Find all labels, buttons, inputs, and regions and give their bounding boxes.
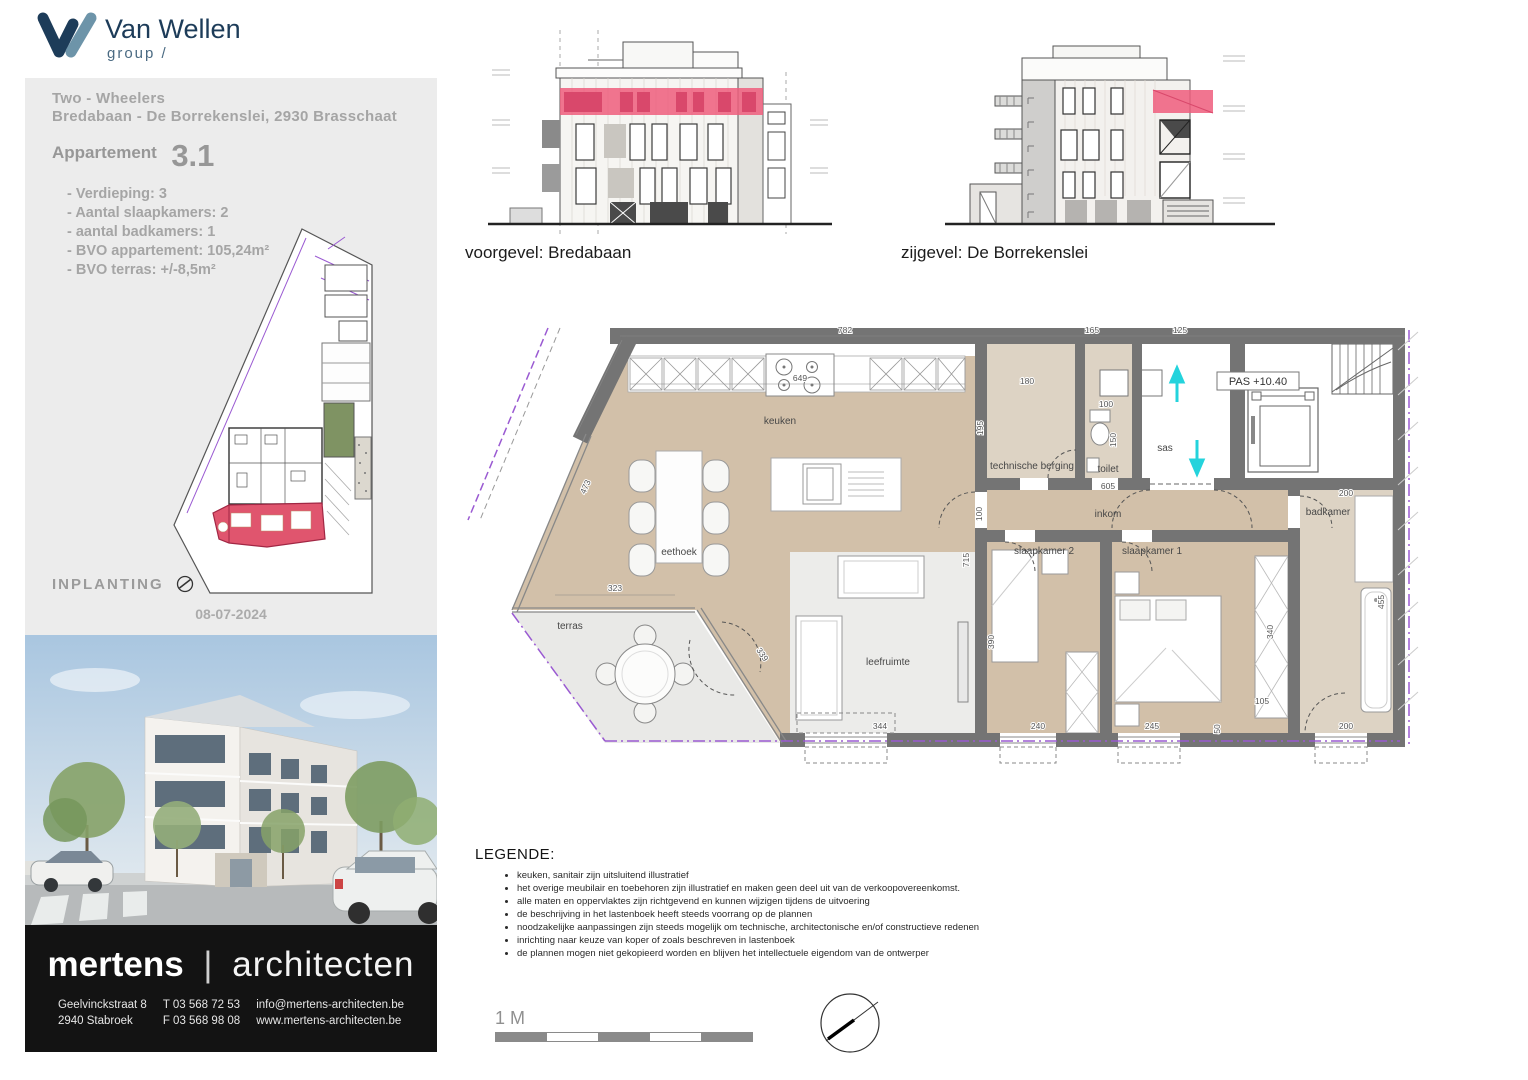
elevation-side-drawing (905, 12, 1300, 240)
apartment-title: Appartement 3.1 (52, 138, 214, 174)
dim-195: 195 (975, 421, 985, 435)
dim-605: 605 (1101, 481, 1115, 491)
room-sas: sas (1157, 443, 1173, 454)
project-address: Bredabaan - De Borrekenslei, 2930 Brassc… (52, 108, 397, 125)
dim-165: 165 (1085, 325, 1099, 335)
architect-contact: Geelvinckstraat 8 2940 Stabroek T 03 568… (25, 997, 437, 1029)
elevator-icon (1248, 388, 1318, 472)
spec-bedrooms: - Aantal slaapkamers: 2 (67, 204, 269, 223)
north-mini-icon (176, 575, 194, 593)
info-panel: Two - Wheelers Bredabaan - De Borrekensl… (25, 78, 437, 635)
project-name: Two - Wheelers (52, 90, 165, 107)
dim-105: 105 (1255, 696, 1269, 706)
inplanting-label-row: INPLANTING (52, 575, 194, 593)
legend-item: inrichting naar keuze van koper of zoals… (517, 934, 1035, 947)
legend-item: alle maten en oppervlaktes zijn richtgev… (517, 895, 1035, 908)
room-toilet: toilet (1097, 464, 1118, 475)
dim-240: 240 (1031, 721, 1045, 731)
legend: LEGENDE: keuken, sanitair zijn uitsluite… (475, 846, 1035, 960)
architect-footer: mertens | architecten Geelvinckstraat 8 … (25, 925, 437, 1052)
legend-item: het overige meubilair en toebehoren zijn… (517, 882, 1035, 895)
dim-200b: 200 (1339, 721, 1353, 731)
dim-245: 245 (1145, 721, 1159, 731)
stairs-icon (1332, 344, 1393, 394)
architect-email: info@mertens-architecten.be (256, 997, 404, 1013)
brand-sub: group / (107, 45, 168, 62)
architect-city: 2940 Stabroek (58, 1013, 147, 1029)
bathroom-fixtures-icon (1355, 496, 1393, 712)
north-arrow-icon (818, 991, 882, 1055)
architect-phone: T 03 568 72 53 (163, 997, 240, 1013)
floor-plan-drawing: 782 165 125 649 180 195 100 150 605 100 … (460, 300, 1420, 805)
dim-323: 323 (608, 583, 622, 593)
dim-455: 455 (1376, 595, 1386, 609)
dim-100b: 100 (974, 507, 984, 521)
inplanting-label: INPLANTING (52, 576, 164, 593)
legend-title: LEGENDE: (475, 846, 1035, 863)
dim-649: 649 (793, 373, 807, 383)
architect-website: www.mertens-architecten.be (256, 1013, 404, 1029)
pas-label: PAS +10.40 (1229, 376, 1287, 388)
van-wellen-logo-icon: Van Wellen group / (35, 8, 295, 70)
dim-344: 344 (873, 721, 887, 731)
dim-200a: 200 (1339, 488, 1353, 498)
room-keuken: keuken (764, 416, 796, 427)
site-plan-drawing (165, 223, 455, 613)
legend-item: noodzakelijke aanpassingen zijn steeds m… (517, 921, 1035, 934)
dim-50: 50 (1212, 724, 1222, 734)
room-terras: terras (557, 621, 583, 632)
apartment-number: 3.1 (171, 138, 214, 173)
dim-125: 125 (1173, 325, 1187, 335)
room-eethoek: eethoek (661, 547, 698, 558)
architect-fax: F 03 568 98 08 (163, 1013, 240, 1029)
scale-bar: 1 M (495, 1008, 753, 1042)
room-berging: technische berging (990, 461, 1074, 472)
room-badkamer: badkamer (1306, 507, 1351, 518)
architect-name-divider: | (193, 945, 222, 984)
architect-name-right: architecten (232, 945, 414, 984)
room-inkom: inkom (1095, 509, 1122, 520)
dim-150: 150 (1108, 433, 1118, 447)
dim-782: 782 (838, 325, 852, 335)
side-elevation-caption: zijgevel: De Borrekenslei (901, 243, 1088, 263)
front-elevation-caption: voorgevel: Bredabaan (465, 243, 631, 263)
dim-340: 340 (1265, 625, 1275, 639)
scale-label: 1 M (495, 1008, 753, 1029)
van-wellen-logo: Van Wellen group / (35, 8, 295, 70)
dim-390: 390 (986, 635, 996, 649)
spec-floor: - Verdieping: 3 (67, 185, 269, 204)
brand-name: Van Wellen (105, 14, 241, 44)
building-render-image (25, 635, 437, 925)
sheet-date: 08-07-2024 (25, 606, 437, 622)
architect-name: mertens | architecten (25, 945, 437, 985)
room-slaapkamer2: slaapkamer 2 (1014, 546, 1074, 557)
legend-item: de plannen mogen niet gekopieerd worden … (517, 947, 1035, 960)
architect-street: Geelvinckstraat 8 (58, 997, 147, 1013)
architect-name-left: mertens (48, 945, 184, 984)
plan-sheet: Van Wellen group / Two - Wheelers Bredab… (0, 0, 1528, 1080)
dim-180: 180 (1020, 376, 1034, 386)
elevation-front-drawing (480, 12, 840, 240)
scale-bar-graphic (495, 1032, 753, 1042)
shaft-icon (1100, 370, 1128, 396)
legend-item: de beschrijving in het lastenboek heeft … (517, 908, 1035, 921)
kitchen-island-icon (771, 458, 901, 511)
level-label: PAS +10.40 (1217, 372, 1299, 390)
apartment-label: Appartement (52, 143, 157, 162)
dim-100a: 100 (1099, 399, 1113, 409)
legend-item: keuken, sanitair zijn uitsluitend illust… (517, 869, 1035, 882)
dim-715: 715 (961, 553, 971, 567)
room-slaapkamer1: slaapkamer 1 (1122, 546, 1182, 557)
room-leefruimte: leefruimte (866, 657, 910, 668)
